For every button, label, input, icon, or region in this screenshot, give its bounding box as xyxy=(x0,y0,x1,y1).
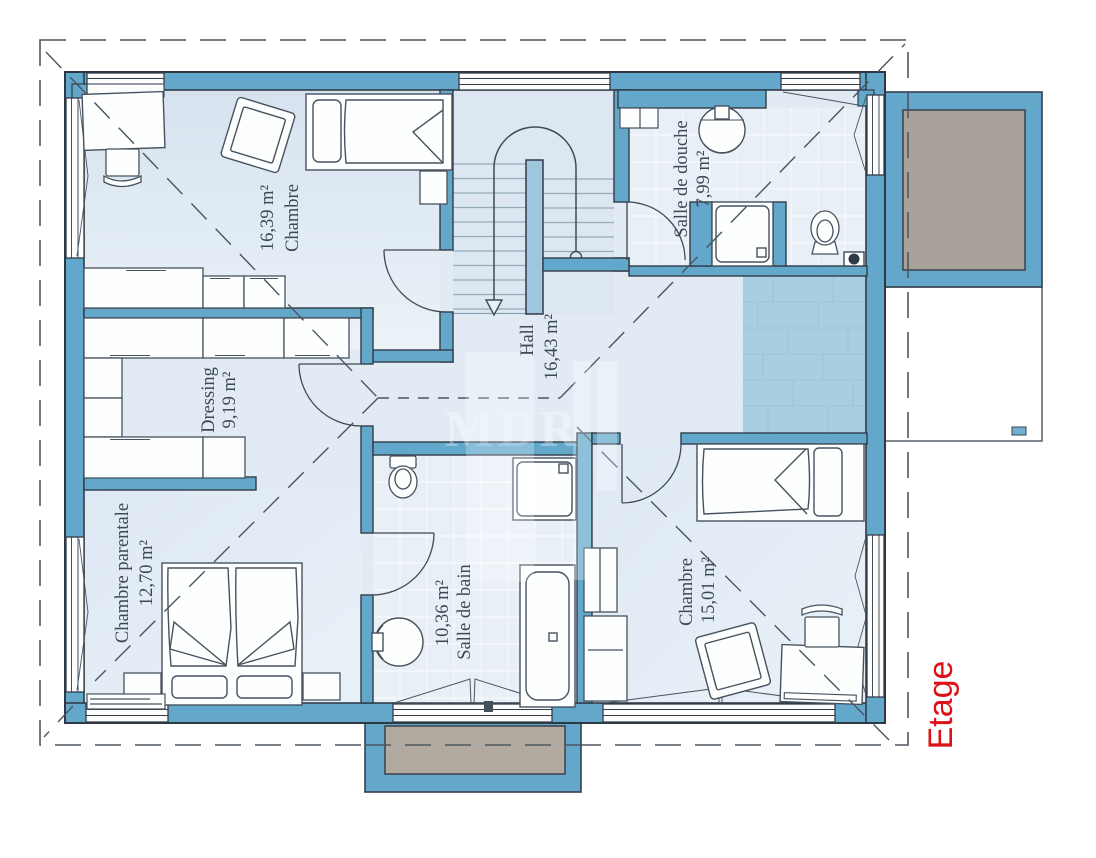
svg-text:Dressing: Dressing xyxy=(199,367,219,433)
svg-text:7,99 m²: 7,99 m² xyxy=(694,150,714,207)
svg-text:16,39 m²: 16,39 m² xyxy=(258,184,278,251)
svg-text:15,01 m²: 15,01 m² xyxy=(699,556,719,623)
svg-text:16,43 m²: 16,43 m² xyxy=(542,313,562,380)
svg-text:9,19 m²: 9,19 m² xyxy=(220,371,240,428)
svg-text:Salle de douche: Salle de douche xyxy=(672,120,692,237)
svg-text:12,70 m²: 12,70 m² xyxy=(137,539,157,606)
svg-text:Chambre: Chambre xyxy=(283,184,303,252)
svg-text:Chambre: Chambre xyxy=(677,558,697,626)
svg-text:MDR: MDR xyxy=(445,401,581,458)
svg-text:Chambre parentale: Chambre parentale xyxy=(113,503,133,643)
svg-text:10,36 m²: 10,36 m² xyxy=(433,579,453,646)
svg-text:Hall: Hall xyxy=(518,324,538,356)
svg-text:Salle de bain: Salle de bain xyxy=(455,564,475,660)
svg-text:Etage: Etage xyxy=(922,661,960,750)
